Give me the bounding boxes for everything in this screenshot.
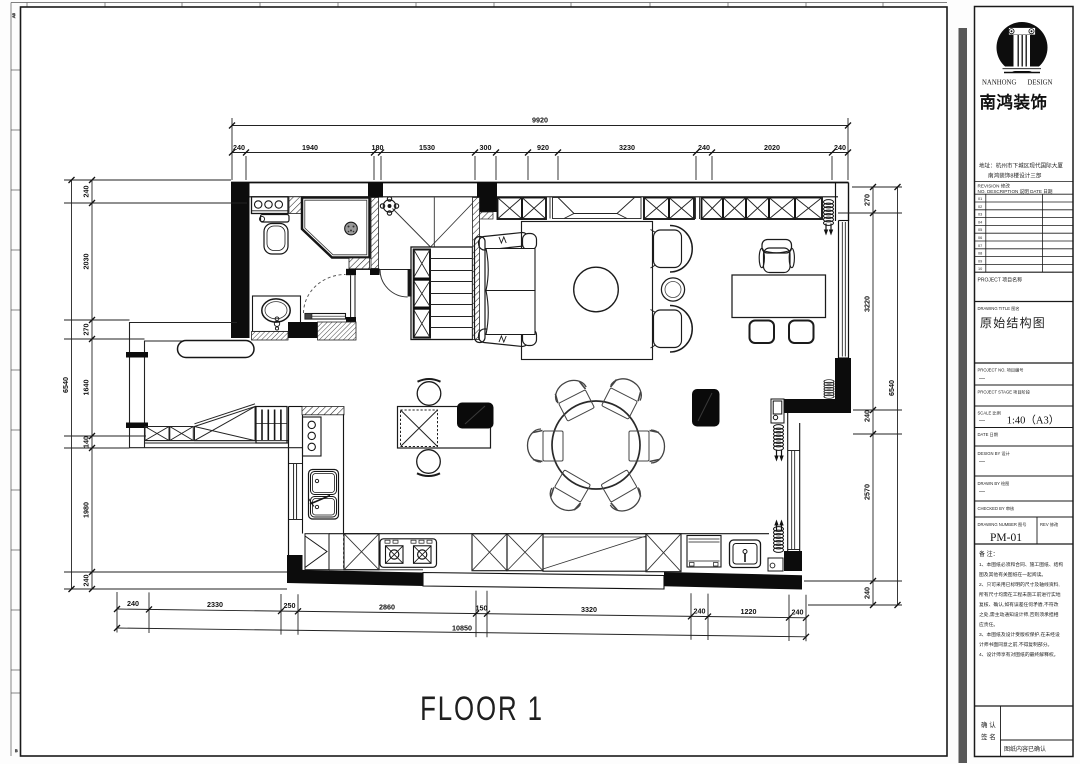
svg-text:140: 140 [82, 436, 91, 448]
svg-text:地址：杭州市下城区现代国际大厦: 地址：杭州市下城区现代国际大厦 [979, 162, 1063, 170]
svg-text:180: 180 [372, 143, 384, 152]
svg-text:REV 修改: REV 修改 [1040, 521, 1059, 528]
svg-text:DRAWING TITLE 图名: DRAWING TITLE 图名 [978, 305, 1020, 312]
svg-text:—: — [979, 376, 985, 382]
svg-text:图纸内容已确认: 图纸内容已确认 [1004, 745, 1046, 753]
svg-text:10850: 10850 [452, 623, 472, 632]
svg-text:南鸿装饰8楼设计三部: 南鸿装饰8楼设计三部 [988, 172, 1042, 180]
svg-text:NO. DESCRIPTION 说明 DATE 日: NO. DESCRIPTION 说明 DATE 日期 [978, 188, 1053, 195]
svg-text:PROJECT STAGE 项目阶段: PROJECT STAGE 项目阶段 [978, 389, 1031, 396]
svg-text:240: 240 [82, 575, 91, 587]
svg-text:备 注：: 备 注： [979, 550, 999, 558]
svg-text:NANHONG: NANHONG [982, 80, 1016, 87]
svg-text:240: 240 [82, 186, 91, 198]
svg-text:DESIGN: DESIGN [1028, 80, 1053, 87]
svg-text:B: B [15, 748, 18, 753]
svg-text:1640: 1640 [82, 380, 91, 396]
svg-text:270: 270 [863, 194, 872, 206]
svg-text:08: 08 [978, 252, 982, 256]
svg-text:计师书面同意之前,不得复制部分。: 计师书面同意之前,不得复制部分。 [979, 641, 1052, 648]
svg-text:3320: 3320 [581, 605, 597, 614]
svg-text:2020: 2020 [764, 143, 780, 152]
svg-text:07: 07 [978, 244, 982, 248]
svg-text:1、本图纸必须和合同、施工图纸、结构: 1、本图纸必须和合同、施工图纸、结构 [979, 561, 1063, 568]
svg-text:150: 150 [476, 604, 488, 613]
svg-text:之处,需主动通知设计师,否则须承担相: 之处,需主动通知设计师,否则须承担相 [979, 611, 1059, 618]
svg-text:240: 240 [863, 587, 872, 599]
svg-text:01: 01 [978, 197, 982, 201]
svg-text:FLOOR 1: FLOOR 1 [420, 689, 544, 727]
svg-text:240: 240 [127, 599, 139, 608]
svg-text:04: 04 [978, 220, 982, 224]
svg-text:6540: 6540 [887, 380, 896, 396]
svg-text:1:40（A3）: 1:40（A3） [1007, 415, 1060, 427]
svg-text:3、本图纸及设计受版权保护,在未经设: 3、本图纸及设计受版权保护,在未经设 [979, 631, 1060, 638]
svg-text:240: 240 [834, 143, 846, 152]
svg-text:1530: 1530 [419, 143, 435, 152]
svg-text:PROJECT NO. 项目编号: PROJECT NO. 项目编号 [978, 367, 1024, 374]
svg-text:2570: 2570 [863, 484, 872, 500]
svg-text:DRAWN BY 绘图: DRAWN BY 绘图 [978, 480, 1010, 487]
svg-text:2330: 2330 [207, 600, 223, 609]
svg-text:240: 240 [233, 143, 245, 152]
svg-text:240: 240 [792, 608, 804, 617]
svg-text:3230: 3230 [619, 143, 635, 152]
svg-text:—: — [979, 489, 985, 495]
svg-text:6540: 6540 [61, 377, 70, 393]
svg-text:920: 920 [537, 143, 549, 152]
svg-text:签 名: 签 名 [981, 732, 996, 741]
svg-text:确 认: 确 认 [981, 720, 996, 729]
svg-text:1220: 1220 [741, 607, 757, 616]
svg-text:2860: 2860 [379, 602, 395, 611]
svg-text:250: 250 [284, 601, 296, 610]
svg-text:2、只可采用已标明的尺寸及轴线资料,: 2、只可采用已标明的尺寸及轴线资料, [979, 581, 1060, 588]
svg-text:PM-01: PM-01 [990, 532, 1022, 544]
svg-text:南鸿装饰: 南鸿装饰 [980, 92, 1048, 112]
svg-text:SCALE 比例: SCALE 比例 [978, 410, 1001, 417]
svg-text:270: 270 [82, 324, 91, 336]
svg-text:PROJECT 项目名称: PROJECT 项目名称 [978, 277, 1023, 284]
svg-text:9920: 9920 [532, 116, 548, 125]
svg-text:A3: A3 [11, 12, 16, 18]
svg-text:1980: 1980 [82, 502, 91, 518]
svg-text:09: 09 [978, 259, 982, 263]
svg-text:4、设计师享有对图纸的最终解释权。: 4、设计师享有对图纸的最终解释权。 [979, 651, 1058, 658]
svg-text:—: — [979, 459, 985, 465]
svg-text:05: 05 [978, 228, 982, 232]
svg-text:2030: 2030 [82, 254, 91, 270]
svg-text:复核、确认,如有误差任何矛盾,不符改: 复核、确认,如有误差任何矛盾,不符改 [979, 601, 1059, 608]
svg-text:—: — [979, 418, 985, 424]
svg-text:所有尺寸均需在工程未施工前进行实地: 所有尺寸均需在工程未施工前进行实地 [979, 591, 1061, 598]
svg-text:应责任。: 应责任。 [979, 621, 998, 628]
svg-text:240: 240 [863, 410, 872, 422]
svg-text:图及其他有关图纸在一起阅读。: 图及其他有关图纸在一起阅读。 [979, 571, 1046, 578]
svg-text:02: 02 [978, 205, 982, 209]
svg-text:240: 240 [694, 606, 706, 615]
svg-text:240: 240 [698, 143, 710, 152]
svg-text:1940: 1940 [302, 143, 318, 152]
svg-text:DESIGN BY 设计: DESIGN BY 设计 [978, 450, 1010, 457]
svg-text:06: 06 [978, 236, 982, 240]
svg-text:原始结构图: 原始结构图 [980, 315, 1046, 330]
svg-text:CHECKED BY 审核: CHECKED BY 审核 [978, 505, 1016, 512]
svg-text:03: 03 [978, 213, 982, 217]
svg-text:300: 300 [480, 143, 492, 152]
svg-text:10: 10 [978, 267, 982, 271]
svg-text:3220: 3220 [863, 296, 872, 312]
